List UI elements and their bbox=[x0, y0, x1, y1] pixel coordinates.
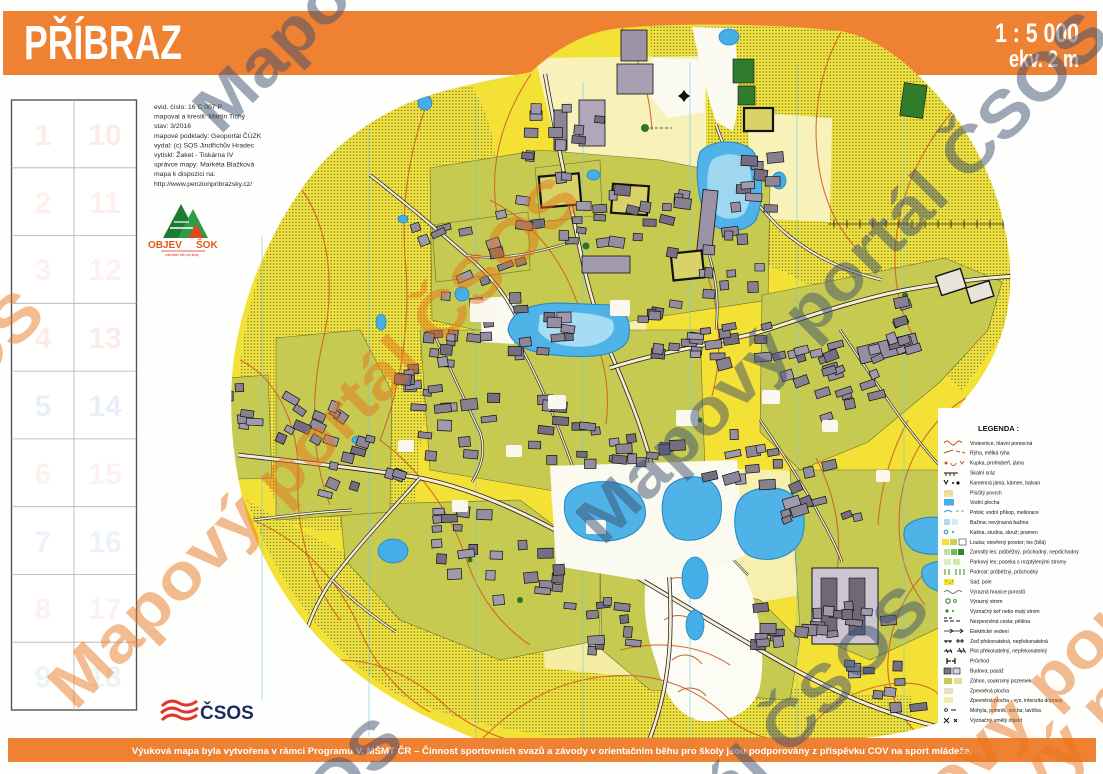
svg-text:12: 12 bbox=[88, 254, 121, 287]
svg-text:vydal: (c) SOS Jindřichův Hrad: vydal: (c) SOS Jindřichův Hradec bbox=[154, 141, 255, 149]
svg-text:Průchod: Průchod bbox=[970, 658, 989, 665]
svg-text:1: 1 bbox=[35, 119, 52, 152]
svg-text:ŠOK: ŠOK bbox=[196, 238, 218, 251]
svg-text:Písčitý povrch: Písčitý povrch bbox=[970, 490, 1002, 496]
svg-text:ČSOS: ČSOS bbox=[200, 702, 254, 724]
svg-text:Kupka, prohlubeň, jáma: Kupka, prohlubeň, jáma bbox=[970, 461, 1024, 467]
svg-text:11: 11 bbox=[89, 187, 121, 220]
svg-text:Louka; otevřený prostor; les (: Louka; otevřený prostor; les (bílá) bbox=[970, 540, 1046, 546]
svg-text:http://www.penzionpribrazsky.c: http://www.penzionpribrazsky.cz/ bbox=[154, 181, 252, 188]
svg-text:Bažina; nevýrazná bažina: Bažina; nevýrazná bažina bbox=[970, 520, 1028, 526]
svg-text:6: 6 bbox=[35, 458, 52, 491]
svg-text:Elektrické vedení: Elektrické vedení bbox=[970, 629, 1009, 635]
svg-text:16: 16 bbox=[88, 526, 121, 559]
svg-text:Nezpevněná cesta; pěšina: Nezpevněná cesta; pěšina bbox=[970, 619, 1030, 625]
svg-text:mapové podklady: Geoportál ČÚZ: mapové podklady: Geoportál ČÚZK bbox=[154, 131, 262, 140]
svg-text:8: 8 bbox=[35, 593, 52, 626]
svg-text:PŘÍBRAZ: PŘÍBRAZ bbox=[24, 15, 182, 70]
svg-text:10: 10 bbox=[88, 119, 121, 152]
svg-text:Vrstevnice, hlavní pomocná: Vrstevnice, hlavní pomocná bbox=[970, 441, 1033, 447]
svg-text:LEGENDA :: LEGENDA : bbox=[978, 424, 1019, 433]
svg-text:2: 2 bbox=[35, 187, 52, 220]
svg-text:Výrazný strom: Výrazný strom bbox=[970, 599, 1003, 605]
svg-text:OBJEV: OBJEV bbox=[148, 240, 182, 251]
svg-text:Skalní sráz: Skalní sráz bbox=[970, 471, 996, 477]
svg-text:5: 5 bbox=[35, 390, 52, 423]
svg-text:Budova; pasáž: Budova; pasáž bbox=[970, 669, 1004, 675]
svg-text:3: 3 bbox=[35, 254, 52, 287]
svg-text:Výrazná hranice porostů: Výrazná hranice porostů bbox=[970, 588, 1025, 595]
svg-text:13: 13 bbox=[88, 322, 121, 355]
svg-text:Sad, pole: Sad, pole bbox=[970, 579, 992, 585]
svg-text:Kašna, studna, skruž; pramen: Kašna, studna, skruž; pramen bbox=[970, 530, 1038, 536]
svg-text:mapa k dispozici na:: mapa k dispozici na: bbox=[154, 171, 216, 178]
svg-text:správce mapy: Markéta Blažkov: správce mapy: Markéta Blažková bbox=[154, 162, 254, 169]
svg-text:Vodní plocha: Vodní plocha bbox=[970, 500, 1000, 506]
svg-text:Parkový les; paseka s rozptýle: Parkový les; paseka s rozptýlenými strom… bbox=[970, 560, 1067, 566]
svg-text:Zarostlý les: průběžný, průcho: Zarostlý les: průběžný, průchodný, neprů… bbox=[970, 549, 1079, 556]
svg-text:vytiskl: Žaket - Tiskárna IV: vytiskl: Žaket - Tiskárna IV bbox=[154, 150, 234, 159]
svg-text:Význačný keř nebo malý strom: Význačný keř nebo malý strom bbox=[970, 609, 1040, 615]
svg-text:stav: 3/2016: stav: 3/2016 bbox=[154, 123, 191, 130]
svg-text:Podrost: průběžný, průchodný: Podrost: průběžný, průchodný bbox=[970, 569, 1038, 576]
svg-text:Rýha, mělká rýha: Rýha, mělká rýha bbox=[970, 451, 1010, 457]
svg-text:orientační běh pro školy: orientační běh pro školy bbox=[165, 253, 199, 257]
svg-text:15: 15 bbox=[88, 458, 121, 491]
svg-text:14: 14 bbox=[88, 390, 122, 423]
svg-text:Kamenná jáma, kámen, balvan: Kamenná jáma, kámen, balvan bbox=[970, 480, 1040, 486]
svg-text:Potok; vodní příkop, meliorace: Potok; vodní příkop, meliorace bbox=[970, 510, 1039, 516]
svg-text:Výuková mapa byla vytvořena v: Výuková mapa byla vytvořena v rámci Prog… bbox=[132, 745, 972, 757]
svg-text:7: 7 bbox=[35, 526, 52, 559]
